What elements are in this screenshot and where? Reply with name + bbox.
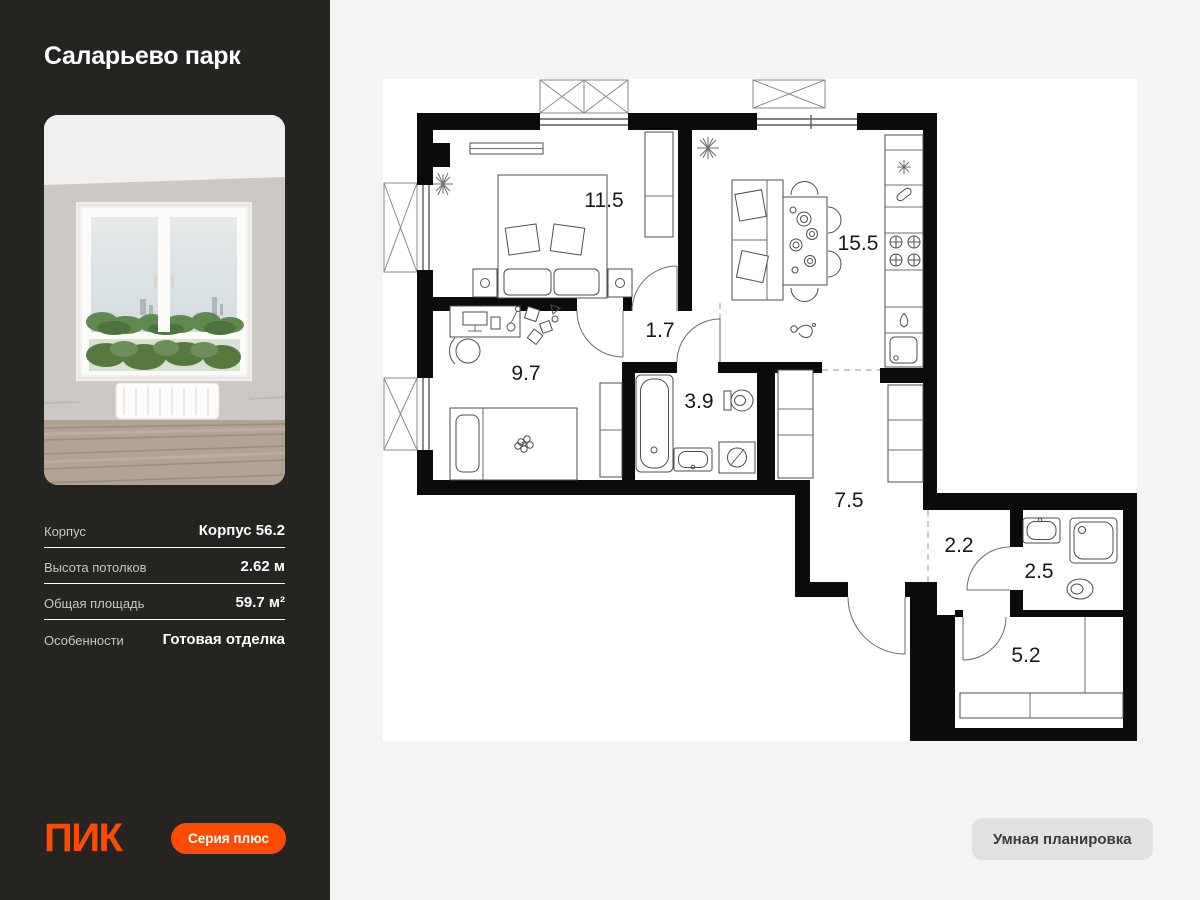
sink-icon [674, 448, 712, 471]
apartment-photo [44, 115, 285, 485]
detail-label: Особенности [44, 633, 124, 648]
room-area-label: 1.7 [645, 319, 674, 342]
room-area-label: 11.5 [584, 189, 623, 212]
washing-machine-icon [719, 442, 755, 473]
room-area-label: 2.5 [1024, 560, 1053, 583]
room-area-label: 5.2 [1011, 644, 1040, 667]
pik-logo: ПИК [44, 818, 121, 858]
kids-room-furniture [449, 305, 622, 480]
room-area-label: 7.5 [834, 489, 863, 512]
detail-label: Общая площадь [44, 596, 144, 611]
pet-toy-icon [791, 324, 816, 338]
sofa-icon [732, 180, 783, 300]
detail-value: Готовая отделка [163, 631, 285, 648]
plant-icon [433, 173, 453, 195]
chair-icon [449, 338, 480, 364]
smart-layout-button[interactable]: Умная планировка [972, 818, 1153, 860]
dining-table-icon [783, 181, 841, 301]
floor-plan-drawing: 11.5 15.5 1.7 9.7 3.9 7.5 2.2 2.5 5.2 [383, 79, 1137, 741]
detail-row-korpus: Корпус Корпус 56.2 [44, 512, 285, 548]
detail-value: 2.62 м [241, 558, 285, 575]
wardrobe-cabinets [960, 617, 1123, 718]
corridor-closets [778, 370, 923, 482]
toilet-icon [724, 390, 753, 411]
desk-icon [450, 306, 521, 337]
closet-icon [888, 385, 923, 482]
kitchen-living-furniture [697, 135, 923, 367]
floor-plan: 11.5 15.5 1.7 9.7 3.9 7.5 2.2 2.5 5.2 [383, 79, 1137, 741]
series-plus-button[interactable]: Серия плюс [171, 823, 286, 854]
bathtub-icon [636, 375, 673, 472]
room-area-label: 15.5 [838, 232, 879, 255]
wardrobe-cabinet-icon [645, 132, 673, 237]
detail-value: Корпус 56.2 [199, 522, 285, 539]
room-area-label: 3.9 [684, 390, 713, 413]
detail-row-total-area: Общая площадь 59.7 м² [44, 584, 285, 620]
room-area-label: 2.2 [944, 534, 973, 557]
detail-row-ceiling-height: Высота потолков 2.62 м [44, 548, 285, 584]
kitchen-counter-icon [885, 135, 923, 367]
sidebar-footer: ПИК Серия плюс [44, 814, 286, 862]
entrance-door-arc [848, 597, 905, 654]
bedroom-furniture [433, 132, 673, 298]
sidebar: Саларьево парк [0, 0, 330, 900]
detail-label: Корпус [44, 524, 86, 539]
plant-icon [697, 137, 719, 159]
single-bed-icon [450, 408, 577, 480]
detail-label: Высота потолков [44, 560, 147, 575]
details-list: Корпус Корпус 56.2 Высота потолков 2.62 … [44, 512, 285, 656]
detail-row-features: Особенности Готовая отделка [44, 620, 285, 656]
shower-room-fixtures [1023, 518, 1117, 599]
page: Саларьево парк [0, 0, 1200, 900]
page-title: Саларьево парк [44, 42, 240, 71]
toilet-icon [1067, 579, 1093, 599]
room-photo-illustration [44, 115, 285, 485]
sink-icon [1023, 518, 1060, 543]
room-area-label: 9.7 [511, 362, 540, 385]
closet-icon [778, 370, 813, 478]
detail-value: 59.7 м² [236, 594, 285, 611]
fridge-snowflake-icon [897, 160, 911, 174]
shower-icon [1070, 518, 1117, 563]
